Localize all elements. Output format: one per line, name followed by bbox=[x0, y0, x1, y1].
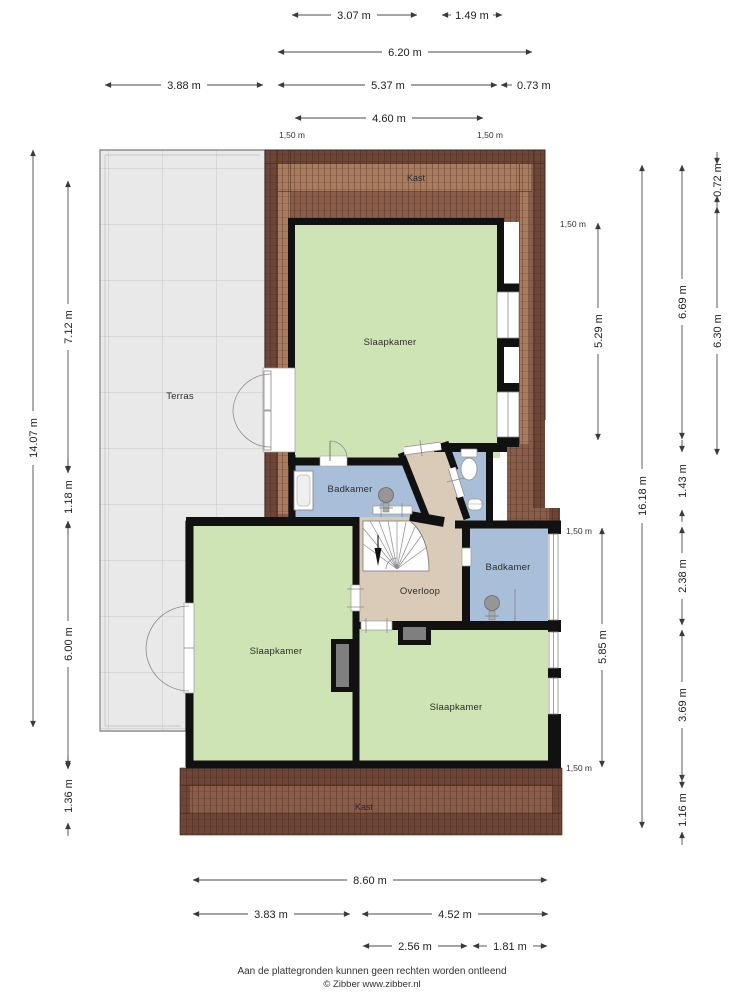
slaapkamer-top-label: Slaapkamer bbox=[364, 337, 417, 348]
dim-label: 3.83 m bbox=[254, 909, 288, 921]
dim-label: 2.38 m bbox=[677, 559, 689, 593]
dim-label: 3.07 m bbox=[337, 10, 371, 22]
chimney-right bbox=[398, 622, 431, 645]
dim-label: 14.07 m bbox=[28, 418, 40, 458]
dim-16-18: 16.18 m bbox=[637, 165, 649, 828]
knee-wall-mark: 1,50 m bbox=[560, 219, 586, 229]
dim-label: 1.18 m bbox=[63, 480, 75, 514]
dim-3-83: 3.83 m bbox=[193, 909, 350, 921]
knee-wall-mark: 1,50 m bbox=[477, 130, 503, 140]
room-badkamer-right bbox=[469, 527, 548, 623]
dim-5-29: 5.29 m bbox=[593, 223, 605, 440]
dim-2-38: 2.38 m bbox=[677, 527, 689, 625]
dim-1-18: 1.18 m bbox=[63, 459, 75, 535]
dim-label: 5.29 m bbox=[593, 314, 605, 348]
door-landing-bathroom bbox=[462, 548, 471, 566]
overloop-label: Overloop bbox=[400, 586, 440, 597]
dimensions-left: 14.07 m 7.12 m 1.18 m 6.00 m 1.36 m bbox=[28, 150, 75, 836]
dim-label: 3.88 m bbox=[167, 80, 201, 92]
dim-label: 2.56 m bbox=[398, 941, 432, 953]
dim-label: 1.16 m bbox=[677, 793, 689, 827]
slaapkamer-left-label: Slaapkamer bbox=[250, 646, 303, 657]
window bbox=[497, 392, 519, 437]
dim-3-69: 3.69 m bbox=[677, 630, 689, 781]
knee-wall-mark: 1,50 m bbox=[566, 763, 592, 773]
room-slaapkamer-right bbox=[357, 628, 548, 765]
dim-label: 0.72 m bbox=[712, 163, 724, 197]
dimensions-right: 0.72 m 6.69 m 6.30 m 5.29 m 16.18 m 1.43… bbox=[560, 152, 724, 845]
dimensions-bottom: 8.60 m 3.83 m 4.52 m 2.56 m 1.81 m bbox=[193, 875, 548, 953]
footer: Aan de plattegronden kunnen geen rechten… bbox=[237, 966, 506, 990]
kast-bottom-label: Kast bbox=[355, 802, 374, 812]
kast-top-label: Kast bbox=[407, 173, 426, 183]
window bbox=[549, 632, 558, 668]
footer-credit: © Zibber www.zibber.nl bbox=[323, 979, 420, 990]
dim-7-12: 7.12 m bbox=[63, 181, 75, 473]
dim-6-69: 6.69 m bbox=[677, 165, 689, 439]
badkamer-left-label: Badkamer bbox=[328, 484, 373, 495]
dim-label: 1.36 m bbox=[63, 779, 75, 813]
dim-3-07: 3.07 m bbox=[292, 10, 417, 22]
dim-label: 5.85 m bbox=[597, 630, 609, 664]
dim-6-20: 6.20 m bbox=[278, 47, 532, 59]
dimensions-top: 3.07 m 1.49 m 6.20 m 3.88 m 5.37 m 0.73 … bbox=[105, 10, 551, 140]
dim-label: 8.60 m bbox=[353, 875, 387, 887]
dim-1-49: 1.49 m bbox=[442, 10, 502, 22]
dim-label: 6.00 m bbox=[63, 627, 75, 661]
chimney-left bbox=[331, 639, 354, 692]
dim-label: 6.69 m bbox=[677, 285, 689, 319]
dim-label: 4.52 m bbox=[438, 909, 472, 921]
dim-8-60: 8.60 m bbox=[193, 875, 547, 887]
dim-6-30: 6.30 m bbox=[712, 207, 724, 455]
knee-wall-mark: 1,50 m bbox=[566, 526, 592, 536]
dim-3-88: 3.88 m bbox=[105, 80, 263, 92]
dim-label: 4.60 m bbox=[372, 113, 406, 125]
floorplan-page: Terras Kast Slaapkamer Badkamer Badkamer… bbox=[0, 0, 750, 1000]
dim-label: 1.49 m bbox=[455, 10, 489, 22]
dim-4-60: 4.60 m bbox=[295, 113, 483, 125]
dim-5-85: 5.85 m bbox=[597, 528, 609, 767]
dim-1-36: 1.36 m bbox=[63, 756, 75, 836]
dim-14-07: 14.07 m bbox=[28, 150, 40, 727]
small-sink-icon bbox=[466, 499, 484, 510]
badkamer-right-label: Badkamer bbox=[486, 562, 531, 573]
dim-1-43: 1.43 m bbox=[677, 440, 689, 522]
dim-label: 5.37 m bbox=[371, 80, 405, 92]
bathtub-icon bbox=[294, 471, 313, 510]
dim-0-73: 0.73 m bbox=[501, 80, 551, 92]
dim-2-56: 2.56 m bbox=[363, 941, 467, 953]
toilet-icon bbox=[461, 449, 477, 480]
terras-label: Terras bbox=[166, 391, 194, 402]
window bbox=[549, 678, 558, 714]
slaapkamer-right-label: Slaapkamer bbox=[430, 702, 483, 713]
dim-label: 1.81 m bbox=[493, 941, 527, 953]
dim-6-00: 6.00 m bbox=[63, 521, 75, 767]
dim-label: 6.20 m bbox=[388, 47, 422, 59]
dim-label: 7.12 m bbox=[63, 310, 75, 344]
window bbox=[497, 292, 519, 338]
dim-label: 16.18 m bbox=[637, 476, 649, 516]
dim-5-37: 5.37 m bbox=[278, 80, 497, 92]
dim-1-81: 1.81 m bbox=[473, 941, 547, 953]
floorplan-drawing: Terras Kast Slaapkamer Badkamer Badkamer… bbox=[0, 0, 750, 1000]
footer-disclaimer: Aan de plattegronden kunnen geen rechten… bbox=[237, 966, 506, 977]
dim-4-52: 4.52 m bbox=[362, 909, 548, 921]
dim-0-72: 0.72 m bbox=[712, 152, 724, 208]
knee-wall-mark: 1,50 m bbox=[279, 130, 305, 140]
room-slaapkamer-left bbox=[192, 525, 353, 765]
dim-1-16: 1.16 m bbox=[677, 775, 689, 845]
dim-label: 1.43 m bbox=[677, 464, 689, 498]
dim-label: 3.69 m bbox=[677, 688, 689, 722]
dim-label: 6.30 m bbox=[712, 314, 724, 348]
sink-icon-left bbox=[379, 488, 394, 513]
window bbox=[549, 534, 558, 620]
dim-label: 0.73 m bbox=[517, 80, 551, 92]
